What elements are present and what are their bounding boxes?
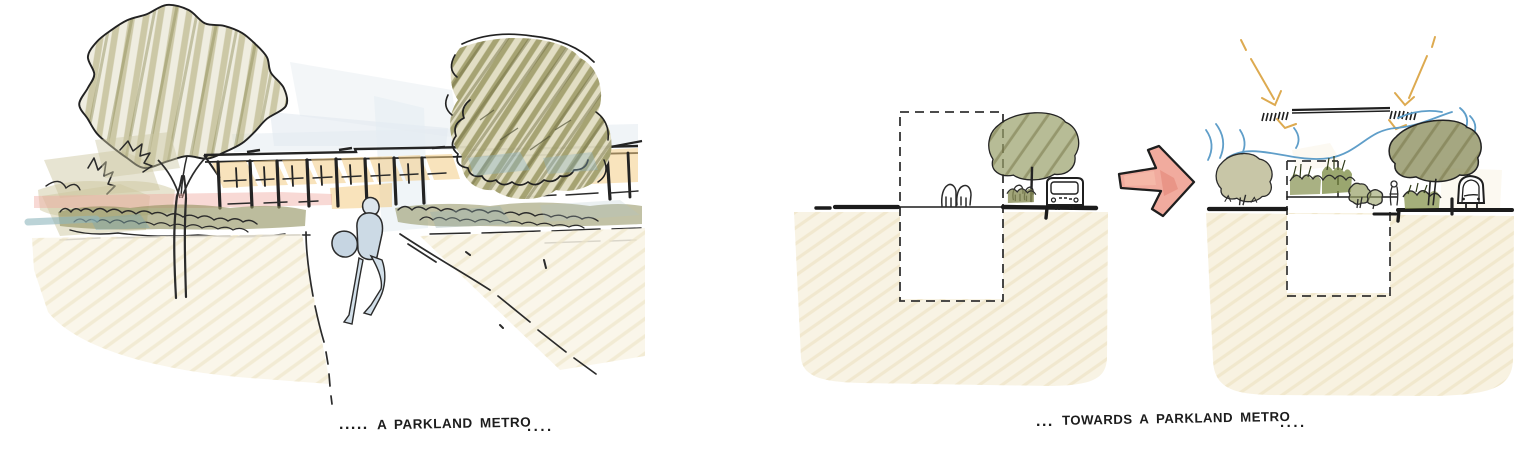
svg-text:.....: ..... — [339, 416, 369, 433]
svg-text:....: .... — [527, 418, 554, 435]
svg-text:A PARKLAND METRO: A PARKLAND METRO — [377, 415, 531, 433]
svg-text:...: ... — [1036, 413, 1054, 430]
svg-text:....: .... — [1280, 414, 1307, 431]
